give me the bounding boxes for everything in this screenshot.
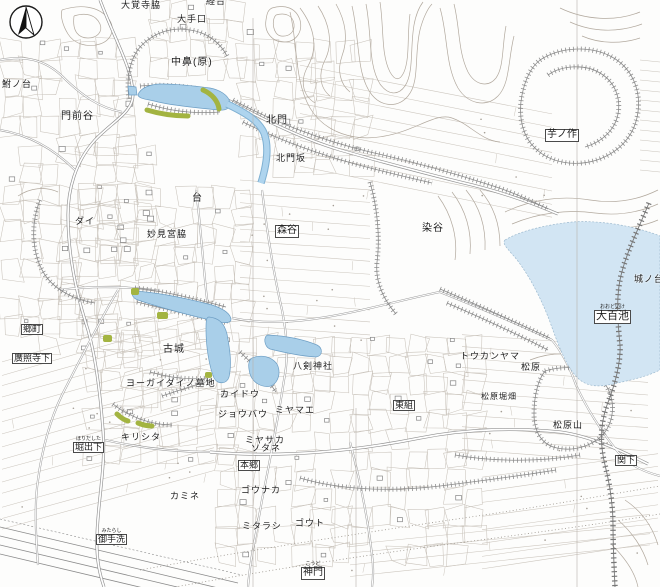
place-label-8: 北門坂	[276, 154, 306, 163]
place-label-40: 神門こうど	[301, 567, 325, 580]
place-label-text: ヨーガイダイノ墓地	[126, 378, 216, 388]
place-label-5: 門前谷	[61, 112, 94, 123]
place-label-3: 中鼻(原)	[171, 58, 213, 69]
place-label-text: 古城	[163, 344, 185, 355]
place-label-text: 本郷	[240, 460, 258, 470]
place-label-text: 松原	[521, 362, 541, 372]
place-label-22: ヨーガイダイノ墓地	[126, 379, 216, 388]
place-label-text: 染谷	[422, 223, 444, 234]
place-label-0: 大覚寺脇	[121, 1, 161, 10]
place-label-text: ソタネ	[251, 443, 281, 453]
place-label-text: 関下	[617, 455, 635, 465]
place-label-text: 大覚寺脇	[121, 0, 161, 10]
place-label-29: キリシタ	[121, 433, 161, 442]
place-label-36: カミネ	[170, 492, 200, 501]
place-label-text: 郷町	[23, 324, 41, 334]
place-label-text: 神門	[303, 567, 323, 578]
place-label-text: 中鼻(原)	[171, 57, 213, 68]
furigana: みたらし	[97, 529, 126, 534]
place-label-15: 大百池おおどいけ	[594, 310, 631, 324]
place-label-text: 門前谷	[61, 111, 94, 122]
place-label-18: トウカンヤマ	[460, 352, 520, 361]
place-label-28: 松原山	[553, 421, 583, 430]
place-label-34: 本郷	[238, 460, 260, 471]
place-label-text: ゴウナカ	[241, 485, 281, 495]
place-label-7: 芋ノ作	[545, 129, 579, 142]
place-label-16: 郷町	[21, 324, 43, 335]
place-label-24: 松原堀畑	[481, 393, 517, 401]
place-label-20: 八剣神社	[293, 362, 333, 371]
place-label-text: 北門坂	[276, 153, 306, 163]
place-label-text: 北門	[266, 115, 288, 126]
place-label-32: ソタネ	[251, 444, 281, 453]
place-label-text: 芋ノ作	[547, 129, 577, 140]
water-layer	[128, 84, 660, 386]
place-label-text: 台	[192, 193, 203, 204]
place-label-25: 東組	[393, 400, 415, 411]
place-label-26: ミヤマエ	[275, 406, 315, 415]
furigana: おおどいけ	[595, 305, 630, 310]
place-label-text: 松原堀畑	[481, 392, 517, 401]
place-label-6: 北門	[266, 116, 288, 127]
place-label-35: ゴウナカ	[241, 486, 281, 495]
place-label-39: 御手洗みたらし	[96, 534, 127, 545]
place-label-21: 松原	[521, 363, 541, 372]
place-label-text: 八剣神社	[293, 361, 333, 371]
place-label-text: ジョウバウ	[218, 409, 268, 419]
place-label-text: 東組	[395, 400, 413, 410]
place-label-text: 大百池	[596, 310, 629, 322]
place-label-17: 古城	[163, 345, 185, 356]
place-label-33: 関下	[615, 455, 637, 466]
place-label-text: ミタラシ	[242, 521, 282, 531]
place-label-31: 堀出下ほりだした	[73, 442, 104, 453]
place-label-9: 台	[192, 194, 203, 205]
place-label-text: 城ノ台	[634, 274, 660, 284]
place-label-text: 松原山	[553, 420, 583, 430]
place-label-38: ミタラシ	[242, 522, 282, 531]
place-label-23: カイドウ	[220, 390, 260, 399]
map-canvas	[0, 0, 660, 587]
place-label-text: 大手口	[177, 14, 207, 24]
place-label-19: 廣照寺下	[12, 353, 52, 364]
place-label-text: カイドウ	[220, 389, 260, 399]
place-label-13: 妙見宮脇	[147, 230, 187, 239]
furigana: ほりだした	[74, 437, 103, 442]
furigana: こうど	[302, 562, 324, 567]
place-label-text: 森谷	[277, 225, 297, 236]
place-label-4: 鮒ノ台	[2, 80, 32, 89]
place-label-2: 大手口	[177, 15, 207, 24]
place-label-12: 森谷	[275, 225, 299, 238]
place-label-1: 経台	[206, 0, 226, 6]
compass-north-icon	[10, 6, 42, 38]
dotted-corridor-road	[140, 486, 660, 587]
place-label-text: 堀出下	[75, 442, 102, 452]
place-label-text: 御手洗	[98, 534, 125, 544]
place-label-text: 経台	[206, 0, 226, 6]
place-label-14: 城ノ台	[634, 275, 660, 284]
place-label-text: ミヤマエ	[275, 405, 315, 415]
place-label-37: ゴウト	[295, 519, 325, 528]
place-label-11: 染谷	[422, 224, 444, 235]
place-label-text: ゴウト	[295, 518, 325, 528]
place-label-text: 妙見宮脇	[147, 229, 187, 239]
place-label-text: トウカンヤマ	[460, 351, 520, 361]
place-label-text: ダイ	[75, 216, 95, 226]
place-label-27: ジョウバウ	[218, 410, 268, 419]
topographic-map: 大覚寺脇経台大手口中鼻(原)鮒ノ台門前谷北門芋ノ作北門坂台ダイ染谷森谷妙見宮脇城…	[0, 0, 660, 587]
place-label-text: 廣照寺下	[14, 353, 50, 363]
place-label-10: ダイ	[75, 217, 95, 226]
place-label-text: キリシタ	[121, 432, 161, 442]
place-label-text: カミネ	[170, 491, 200, 501]
place-label-text: 鮒ノ台	[2, 79, 32, 89]
